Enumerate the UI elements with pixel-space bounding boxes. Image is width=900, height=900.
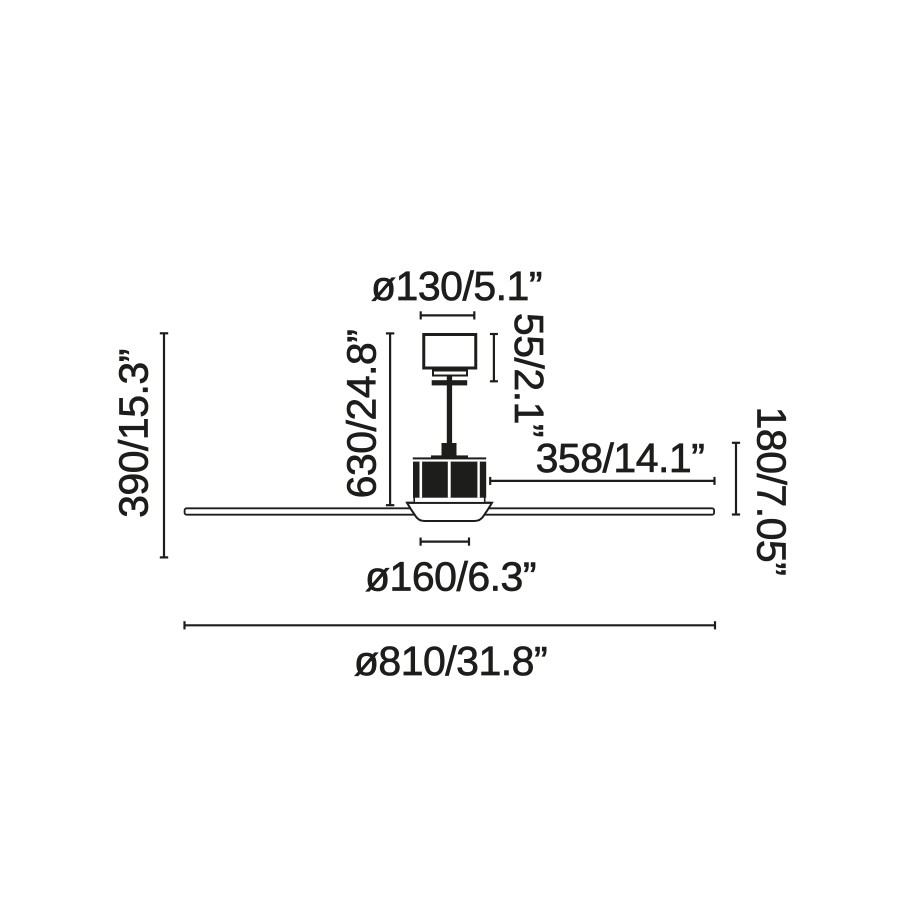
- svg-text:ø130/5.1”: ø130/5.1”: [371, 263, 542, 309]
- svg-text:ø160/6.3”: ø160/6.3”: [365, 554, 536, 600]
- svg-text:358/14.1”: 358/14.1”: [536, 435, 705, 481]
- svg-text:ø810/31.8”: ø810/31.8”: [354, 638, 547, 684]
- svg-text:630/24.8”: 630/24.8”: [339, 330, 385, 499]
- svg-text:180/7.05”: 180/7.05”: [749, 407, 795, 576]
- svg-text:390/15.3”: 390/15.3”: [111, 349, 157, 518]
- svg-text:55/2.1”: 55/2.1”: [506, 313, 552, 437]
